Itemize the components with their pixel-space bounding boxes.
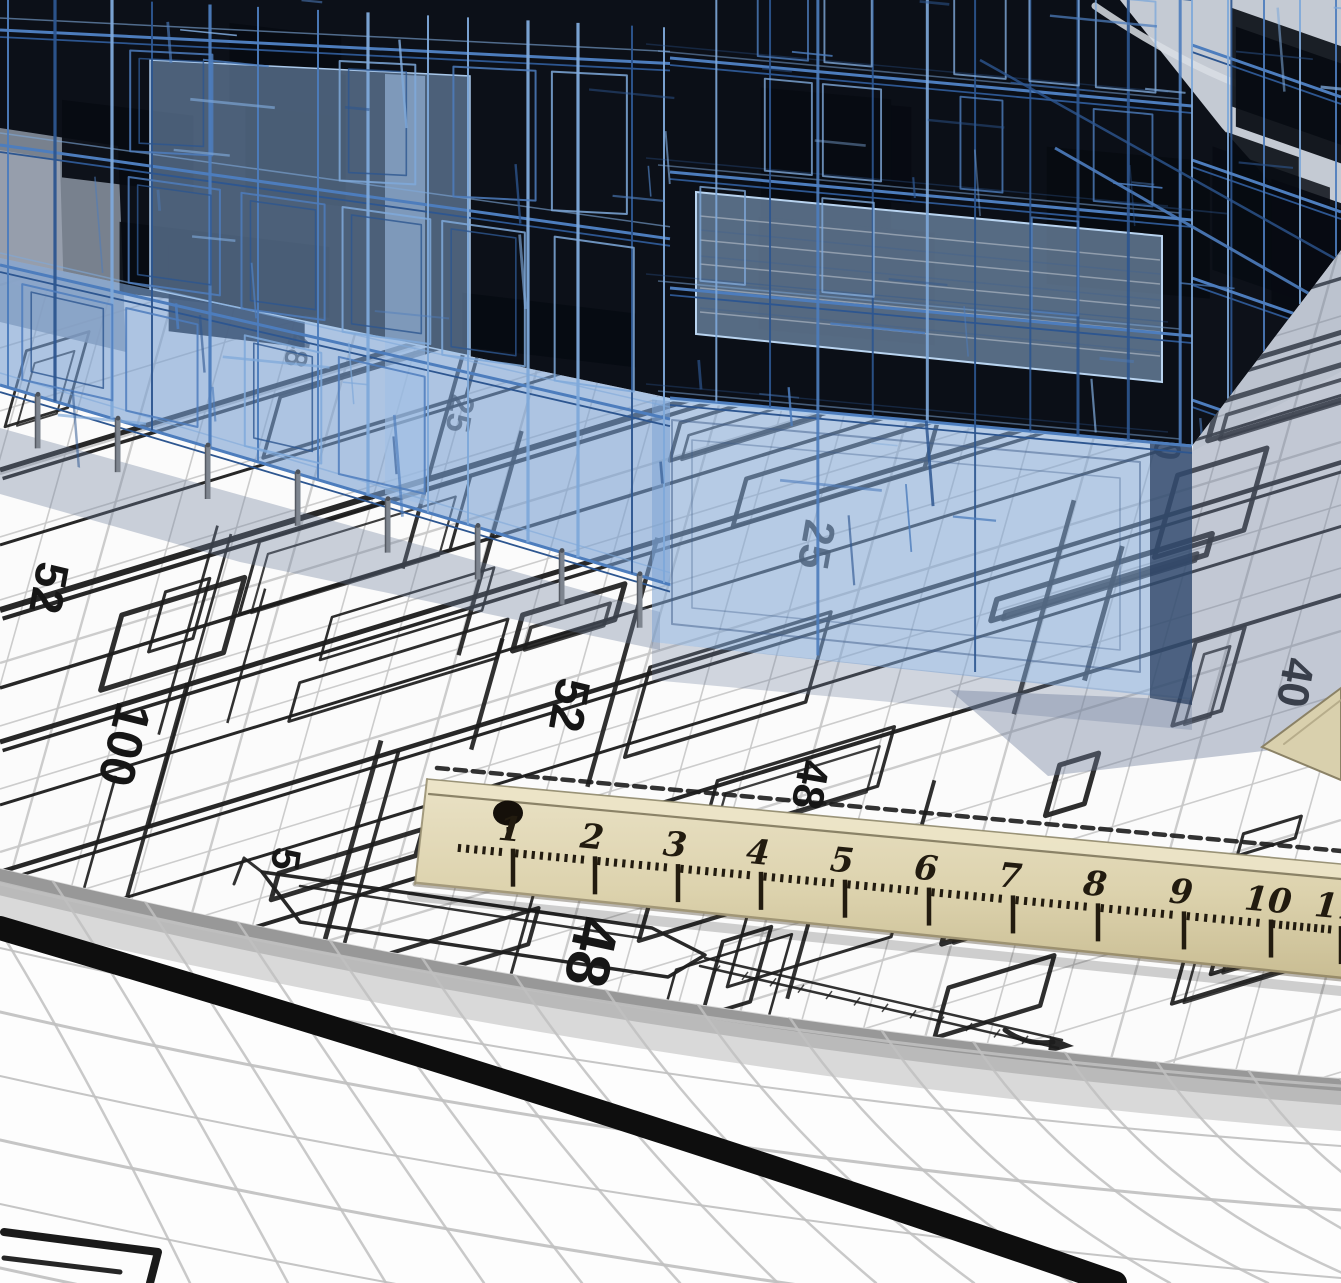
ruler-number: 10 <box>1243 878 1294 922</box>
ruler-number: 7 <box>996 855 1024 897</box>
architectural-render-photo: 5210048255524825404048 1234567891011 <box>0 0 1341 1283</box>
ruler-number: 8 <box>1080 863 1108 905</box>
plan-dimension-label: 48 <box>782 756 839 813</box>
scene-canvas: 5210048255524825404048 1234567891011 <box>0 0 1341 1283</box>
ruler-number: 11 <box>1313 885 1341 929</box>
ruler-number: 1 <box>496 809 523 851</box>
plan-dimension-label: 52 <box>19 558 79 617</box>
ruler-number: 6 <box>912 848 939 890</box>
ruler-number: 9 <box>1167 871 1194 913</box>
ruler-number: 2 <box>577 816 605 858</box>
ruler-number: 4 <box>744 832 771 874</box>
ruler-number: 5 <box>828 840 855 882</box>
plan-dimension-label: 52 <box>538 674 599 736</box>
plan-dimension-label: 48 <box>550 911 632 993</box>
ruler-number: 3 <box>661 824 688 866</box>
